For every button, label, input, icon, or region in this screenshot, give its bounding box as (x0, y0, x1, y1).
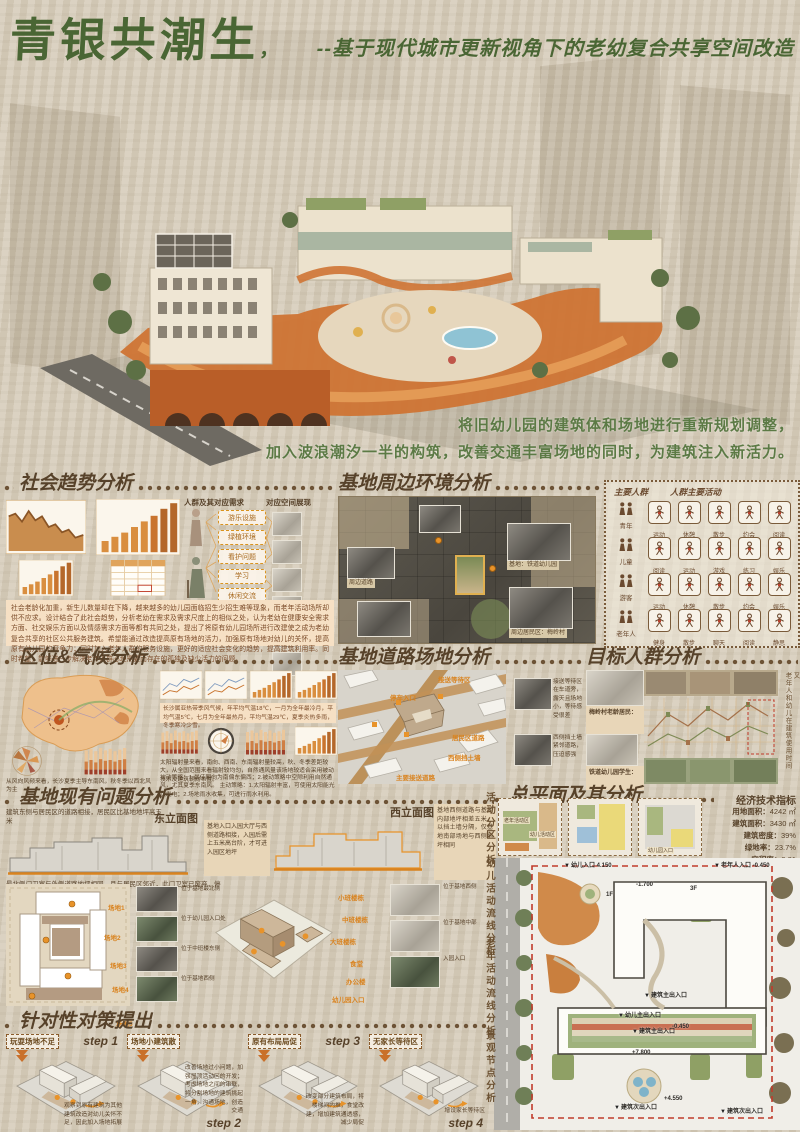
plan-entrance-label: ▼老年人入口 -0.450 (714, 860, 770, 869)
activity-figure-icon (682, 577, 697, 592)
activity-icon (738, 537, 761, 560)
building-label: 幼儿园入口 (332, 994, 365, 1004)
indicator-row: 建筑面积：3430 ㎡ (732, 818, 796, 830)
axon-label: 停车入口 (390, 692, 416, 702)
poster-title: 青银共潮生， (8, 4, 281, 70)
activity-item: 健身 (646, 609, 672, 650)
activity-icon (768, 537, 791, 560)
building-label: 中班楼栋 (342, 914, 368, 924)
climate-chart (250, 670, 292, 700)
east-elevation-drawing (6, 828, 198, 876)
problem-photo (390, 920, 440, 952)
zone-label: 老年活动区 (503, 817, 530, 824)
problem-photo-caption: 位于基地西侧 (443, 884, 477, 892)
activity-figure-icon (652, 541, 667, 556)
problem-photo (390, 884, 440, 916)
zone-entry (505, 843, 529, 851)
entrance-marker-icon: ▼ (614, 1105, 620, 1111)
people-pair-icon (614, 610, 638, 623)
activity-icon (768, 501, 791, 524)
indicator-label: 绿地率： (745, 843, 775, 852)
problem-photo (136, 976, 178, 1002)
indicator-row: 建筑密度：39% (732, 830, 796, 842)
audience-group: 游客 (610, 574, 642, 605)
activity-figure-icon (652, 577, 667, 592)
audience-group-label: 游客 (620, 595, 633, 602)
indicator-row: 绿地率：23.7% (732, 842, 796, 854)
step-axon-diagram (375, 1058, 483, 1128)
elderly-group-photo (586, 670, 644, 706)
activity-figure-icon (682, 541, 697, 556)
indicator-value: 3430 ㎡ (770, 819, 796, 828)
zone-yellow (671, 829, 693, 847)
activity-icon (708, 609, 731, 632)
people-pair-icon (614, 502, 638, 515)
activity-icon (678, 537, 701, 560)
profile-elderly: 梅岭村老龄居民： (586, 706, 644, 734)
axon-thumb (272, 568, 302, 592)
plan-entrance-label: 1F (606, 892, 613, 898)
activity-icon (678, 609, 701, 632)
east-elevation-label: 东立面图 (154, 810, 198, 826)
photo-caption: 接送等待区在车道旁，露天且场地小，等待感受很差 (553, 678, 585, 720)
indicator-row: 用地面积：4242 ㎡ (732, 806, 796, 818)
step-note: 观察到原有建筑为其他建筑改造对幼儿关怀不足，因此加入场地拓展 (60, 1102, 122, 1128)
indicator-value: 23.7% (775, 843, 796, 852)
waiting-area-photo (514, 678, 552, 710)
roads-axon-diagram (338, 670, 506, 784)
section-social-trend: 社会趋势分析 人群及其对应需求 对应空间展现 游乐设施绿植环境看护问题学习休闲交… (4, 474, 334, 646)
problem-photo-row: 入园入口 (390, 956, 492, 988)
section-location-climate: 区位&气候分析 从风向风频来看，长沙夏季主导东南风，秋冬季以西北风为主 长沙属亚… (4, 648, 340, 788)
entrance-marker-icon: ▼ (644, 993, 650, 999)
hero-rendering (0, 70, 800, 470)
map-marker-icon (489, 565, 496, 572)
activity-figure-icon (712, 541, 727, 556)
indicator-value: 4242 ㎡ (770, 807, 796, 816)
activity-figure-icon (772, 613, 787, 628)
strategy-step-card: 场地小建筑散step 2改善场地过小问题，加强屋顶活动区的开发；考虑场地之间的串… (125, 1034, 243, 1130)
section-title-social-trend: 社会趋势分析 (4, 474, 334, 493)
step-note: 增设家长等待区 (423, 1107, 485, 1116)
activity-icon (648, 537, 671, 560)
audience-row: 老年人健身散步聊天阅读静思 (608, 608, 796, 641)
axon-thumb (272, 512, 302, 536)
green-area (471, 599, 511, 639)
elderly-figure-icon (184, 556, 208, 600)
plan-entrance-label: ▼幼儿入口 4.150 (564, 860, 612, 869)
west-elevation-drawing (270, 822, 428, 872)
activity-item: 聊天 (706, 609, 732, 650)
context-photo (347, 547, 395, 579)
activity-icon (648, 573, 671, 596)
activity-figure-icon (712, 613, 727, 628)
activity-icon (708, 573, 731, 596)
zone-yellow (599, 804, 625, 850)
map-marker-icon (435, 537, 442, 544)
step-number-label: step 3 (325, 1034, 360, 1048)
zone-green (647, 807, 663, 835)
plan-entrance-label: -1.700 (636, 882, 653, 888)
indicator-label: 建筑密度： (743, 831, 781, 840)
problem-photo-caption: 位于基地西侧 (181, 976, 215, 984)
problem-photo-row: 位于基地西侧 (390, 884, 492, 916)
note-east: 建筑东侧与居民区的道路相接，居民区比基地地坪高五米 (6, 808, 166, 827)
activity-icon (738, 609, 761, 632)
step-problem-tag: 无家长等待区 (369, 1034, 422, 1049)
activity-figure-icon (742, 613, 757, 628)
intro-line-2: 加入波浪潮汐一半的构筑，改善交通丰富场地的同时，为建筑注入新活力。 (266, 441, 794, 462)
audience-group-label: 儿童 (620, 559, 633, 566)
activity-item: 散步 (676, 609, 702, 650)
activity-figure-icon (712, 505, 727, 520)
site-plot-label: 场地4 (112, 984, 129, 994)
activity-figure-icon (682, 613, 697, 628)
map-caption: 周边居民区：梅岭村 (509, 629, 567, 638)
activity-figure-icon (712, 577, 727, 592)
axon-label: 主要接送道路 (396, 772, 435, 782)
activity-figure-icon (772, 505, 787, 520)
plan-entrance-label: +4.550 (664, 1096, 683, 1102)
climate-chart (242, 726, 292, 756)
climate-chart (160, 726, 202, 756)
section-title-site-roads: 基地道路场地分析 (338, 648, 586, 667)
activity-figure-icon (772, 577, 787, 592)
zone-blue (577, 827, 597, 843)
climate-note-1: 长沙属亚热带季风气候，年平均气温18℃，一月为全年最冷月，平均气温5℃，七月为全… (160, 703, 336, 723)
trend-table (96, 560, 180, 596)
zone-label: 幼儿活动区 (529, 831, 556, 838)
plan-entrance-label: ▼建筑次出入口 (720, 1106, 763, 1115)
plan-entrance-label: ▼建筑主出入口 (644, 990, 687, 999)
problem-photo-caption: 位于基地中部 (443, 920, 477, 928)
climate-chart (205, 670, 247, 700)
retaining-wall-photo (514, 734, 552, 766)
problem-photo (136, 946, 178, 972)
step-problem-tag: 玩耍场地不足 (6, 1034, 59, 1049)
audience-group-label: 老年人 (616, 631, 636, 638)
map-overlay (339, 497, 409, 549)
timeline-note-2: 在每天的晚上六点到九点不存在交叉 (790, 672, 800, 788)
building-label: 食堂 (350, 958, 363, 968)
poster: 青银共潮生， --基于现代城市更新视角下的老幼复合共享空间改造 (0, 0, 800, 1132)
map-caption: 基地：铁道幼儿园 (507, 561, 559, 570)
map-caption: 周边道路 (347, 579, 375, 588)
activity-icon (768, 573, 791, 596)
wind-rose-chart (10, 744, 44, 778)
section-surrounding: 基地周边环境分析 基地：铁道幼儿园 周边居民区：梅岭村 周边道路 (338, 474, 600, 646)
audience-row: 青年运动休憩散步约会阅读 (608, 500, 796, 533)
elderly-figure-icon (186, 508, 206, 548)
entrance-marker-icon: ▼ (720, 1109, 726, 1115)
indicator-label: 建筑面积： (732, 819, 770, 828)
people-pair-icon (614, 574, 638, 587)
monthly-stacked-bars (60, 744, 154, 776)
indicator-label: 用地面积： (732, 807, 770, 816)
sun-path-chart (205, 726, 237, 756)
strategy-step-card: 原有布局局促step 3改变部分建筑布局，将楼梯间内推，食堂改建，增加建筑通透感… (246, 1034, 364, 1130)
trend-bar-chart (96, 499, 180, 555)
need-tag: 学习 (218, 569, 266, 584)
activity-icon (708, 537, 731, 560)
activity-figure-icon (772, 541, 787, 556)
activity-figure-icon (742, 541, 757, 556)
site-plot-label: 场地2 (104, 932, 121, 942)
plan-entrance-label: ▼幼儿主出入口 (618, 1010, 661, 1019)
problem-axon-diagram (212, 892, 336, 992)
indicators-title: 经济技术指标 (736, 792, 796, 807)
plan-entrance-label: ▼建筑主出入口 (632, 1026, 675, 1035)
step-note: 改变部分建筑布局，将楼梯间内推，食堂改建，增加建筑通透感，减少局促 (302, 1093, 364, 1128)
entrance-marker-icon: ▼ (618, 1013, 624, 1019)
daily-timeline-chart (644, 670, 778, 784)
building-label: 办公楼 (346, 976, 366, 986)
indicator-value: 39% (781, 831, 796, 840)
plan-entrance-label: 3F (690, 886, 697, 892)
need-tag: 绿植环境 (218, 530, 266, 545)
intro-line-1: 将旧幼儿园的建筑体和场地进行重新规划调整， (458, 414, 794, 435)
section-master-plan: 总平面及其分析 老年活动区 幼儿活动区 幼儿园入口 经济技术指标 用地面积：42… (494, 786, 800, 1132)
surrounding-map: 基地：铁道幼儿园 周边居民区：梅岭村 周边道路 (338, 496, 596, 644)
need-tag: 游乐设施 (218, 510, 266, 525)
audiences-col1-title: 主要人群 (614, 486, 648, 498)
plan-entrance-label: ▼建筑次出入口 (614, 1102, 657, 1111)
audience-row: 游客运动休憩散步约会娱乐 (608, 572, 796, 605)
plan-entrance-label: +7.800 (632, 1050, 651, 1056)
trend-area-chart (6, 499, 86, 555)
flow-right-title: 对应空间展现 (266, 498, 311, 509)
context-photo (357, 601, 411, 637)
activity-icon (708, 501, 731, 524)
climate-chart (295, 726, 337, 756)
audiences-col2-title: 人群主要活动 (670, 486, 721, 498)
activity-icon (678, 573, 701, 596)
china-map (4, 668, 154, 754)
note-entry: 基地入口入园大厅与西侧道路相接，入园后需上五米高台阶，才可进入园区地坪 (204, 820, 270, 876)
strategy-step-card: 玩耍场地不足step 1观察到原有建筑为其他建筑改造对幼儿关怀不足，因此加入场地… (4, 1034, 122, 1130)
activity-figure-icon (652, 613, 667, 628)
master-site-plan: ▼幼儿入口 4.150▼老年人入口 -0.450▼建筑主出入口▼幼儿主出入口-0… (494, 858, 800, 1130)
activity-figure-icon (682, 505, 697, 520)
problem-photos-right: 位于基地西侧位于基地中部入园入口 (390, 884, 492, 992)
zoning-mini-plan-1: 老年活动区 幼儿活动区 (498, 798, 562, 856)
activity-figure-icon (742, 577, 757, 592)
activity-icon (738, 501, 761, 524)
context-photo (419, 505, 461, 533)
activity-label: 聊天 (713, 641, 725, 647)
section-title-location-climate: 区位&气候分析 (4, 648, 340, 667)
activity-icon (768, 609, 791, 632)
climate-chart (295, 670, 337, 700)
building-label: 小班楼栋 (338, 892, 364, 902)
climate-chart (160, 670, 202, 700)
problem-photo (136, 916, 178, 942)
section-title-strategies: 针对性对策提出 (4, 1012, 490, 1031)
trend-bar-chart-2 (6, 560, 86, 596)
problem-photo (136, 886, 178, 912)
step-problem-tag: 原有布局局促 (248, 1034, 301, 1049)
audience-group: 老年人 (610, 610, 642, 641)
axon-label: 西侧挡土墙 (448, 752, 481, 762)
people-pair-icon (614, 538, 638, 551)
problem-photo-caption: 入园入口 (443, 956, 465, 964)
site-plot-label: 场地1 (108, 902, 125, 912)
zoning-mini-plan-3: 幼儿园入口 (638, 798, 702, 856)
audience-group: 儿童 (610, 538, 642, 569)
zone-green (577, 805, 595, 819)
poster-subtitle: --基于现代城市更新视角下的老幼复合共享空间改造 (274, 32, 794, 61)
site-plot-label: 场地3 (110, 960, 127, 970)
activity-icon (648, 609, 671, 632)
step-note: 改善场地过小问题，加强屋顶活动区的开发；考虑场地之间的串联，将分割场地的建筑挑起… (181, 1064, 243, 1116)
activity-label: 阅读 (743, 641, 755, 647)
side-label-elderly-flow: 老年活动流线分析 (482, 938, 496, 1038)
audiences-panel: 主要人群 人群主要活动 青年运动休憩散步约会阅读儿童阅读运动游戏练习娱乐游客运动… (604, 480, 800, 648)
problem-photo (390, 956, 440, 988)
activity-icon (648, 501, 671, 524)
entrance-marker-icon: ▼ (564, 863, 570, 869)
section-title-target-groups: 目标人群分析 (586, 648, 798, 667)
section-strategies: 针对性对策提出 玩耍场地不足step 1观察到原有建筑为其他建筑改造对幼儿关怀不… (4, 1012, 490, 1132)
context-photo (509, 587, 573, 629)
photo-caption: 西侧挡土墙紧邻道路，压迫感强 (553, 734, 585, 759)
activity-label: 静思 (773, 641, 785, 647)
axon-label: 居民区道路 (452, 732, 485, 742)
axon-thumb (272, 540, 302, 564)
zoning-mini-plan-2 (568, 798, 632, 856)
indicators-list: 用地面积：4242 ㎡建筑面积：3430 ㎡建筑密度：39%绿地率：23.7%容… (732, 806, 796, 866)
problem-photo-row: 位于基地中部 (390, 920, 492, 952)
section-title-surrounding: 基地周边环境分析 (338, 474, 600, 493)
entrance-marker-icon: ▼ (632, 1029, 638, 1035)
activity-figure-icon (652, 505, 667, 520)
social-trend-paragraph: 社会老龄化加重，新生儿数量却在下降，越来越多的幼儿园面临招生少招生难等现象，而老… (6, 600, 334, 646)
activity-icon (678, 501, 701, 524)
section-site-roads: 基地道路场地分析 接送等待区 停车入口 居民区道路 西侧挡土墙 主要接送道路 (338, 648, 586, 788)
children-photo (586, 734, 638, 766)
activity-item: 静思 (766, 609, 792, 650)
zone-children (539, 803, 557, 849)
audience-row: 儿童阅读运动游戏练习娱乐 (608, 536, 796, 569)
step-problem-tag: 场地小建筑散 (127, 1034, 180, 1049)
step-number-label: step 1 (83, 1034, 118, 1048)
west-elevation-label: 西立面图 (390, 804, 434, 820)
site-highlight (457, 557, 483, 593)
zone-label: 幼儿园入口 (647, 847, 674, 854)
side-label-landscape: 景观节点分析 (482, 1030, 496, 1105)
axon-label: 接送等待区 (438, 674, 471, 684)
activity-figure-icon (742, 505, 757, 520)
activity-icon (738, 573, 761, 596)
strategy-step-card: 无家长等待区step 4增设家长等待区 (367, 1034, 485, 1130)
side-label-zoning: 活动分区分析 (482, 792, 496, 867)
entrance-marker-icon: ▼ (714, 863, 720, 869)
context-photo (507, 523, 571, 561)
audience-group: 青年 (610, 502, 642, 533)
activity-item: 阅读 (736, 609, 762, 650)
audience-group-label: 青年 (620, 523, 633, 530)
section-target-groups: 目标人群分析 梅岭村老龄居民： 铁道幼儿园学生： 老年人和幼儿在建筑使用时间 在… (586, 648, 798, 788)
section-site-problems: 基地现有问题分析 建筑东侧与居民区的道路相接，居民区比基地地坪高五米 东立面图 … (4, 788, 494, 1012)
building-label: 大班楼栋 (330, 936, 356, 946)
need-tag: 看护问题 (218, 549, 266, 564)
